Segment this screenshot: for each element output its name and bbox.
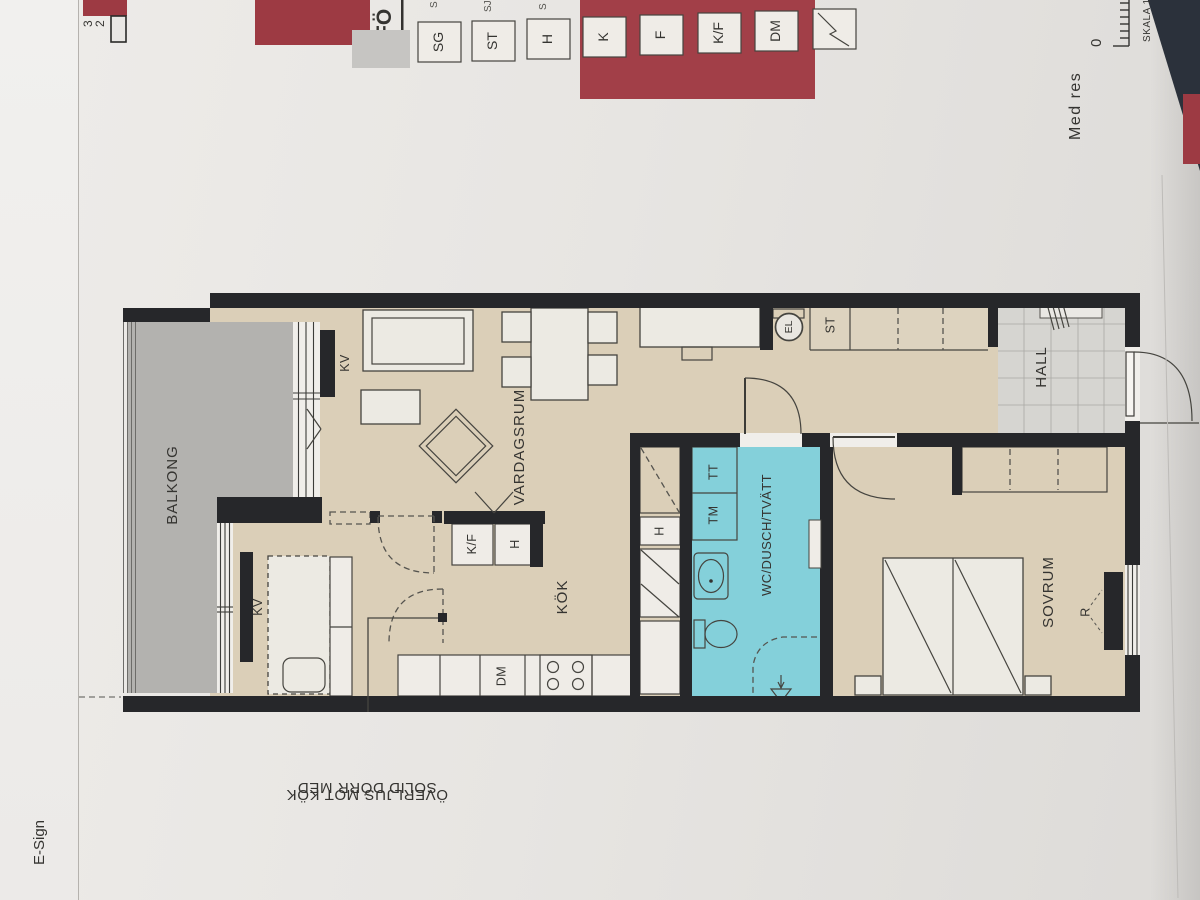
corner-digit: 2 (93, 20, 107, 27)
bathroom-door-opening (740, 433, 802, 447)
wall-el-stub (760, 308, 773, 350)
chair (502, 357, 531, 387)
nightstand (855, 676, 881, 695)
legend-text-fragment: SJ (483, 0, 494, 12)
fixture-label-r: R (1078, 607, 1092, 616)
legend-text-fragment: S (429, 1, 440, 8)
room-label-hall: HALL (1033, 346, 1050, 388)
sofa (363, 310, 473, 371)
wall-right (1125, 308, 1140, 347)
wall-corridor (630, 433, 745, 447)
balcony-floor-lower (127, 497, 217, 693)
wall-hall-left (988, 297, 998, 347)
legend-text-fragment: S (538, 3, 549, 10)
door-annotation: SOLID DÖRR MED ÖVERLJUS MOT KÖK (286, 779, 448, 804)
chair (588, 312, 617, 343)
scale-zero: 0 (1088, 39, 1105, 47)
room-label-bedroom: SOVRUM (1040, 556, 1057, 628)
room-label-bathroom: WC/DUSCH/TVÄTT (759, 474, 774, 596)
legend-gray-swatch (352, 30, 410, 68)
legend-label: F (652, 31, 668, 40)
wall-bathroom-right (820, 437, 833, 696)
chair (588, 355, 617, 385)
bathroom-niche (809, 520, 821, 568)
annotation-line2: ÖVERLJUS MOT KÖK (286, 786, 448, 804)
floorplan-drawing: 3 2 FÖ SG ST H K F K/F DM S SJ (0, 0, 1200, 900)
annotation-dot (438, 613, 447, 622)
wall-corner-block (217, 497, 322, 523)
kitchen-counter (398, 655, 632, 696)
wall-corridor (800, 433, 833, 447)
legend-label: SG (430, 32, 446, 52)
balcony-floor-upper (127, 322, 293, 497)
fixture-label-dm: DM (494, 666, 508, 686)
page-corner-marks: 3 2 (81, 16, 126, 42)
bedroom-door-opening (830, 433, 897, 447)
radiator-kv (320, 330, 335, 397)
lower-cabinet (640, 621, 680, 694)
scale-and-disclaimer: Med res 0 SKALA 1 (1067, 0, 1153, 140)
wall-corridor (895, 433, 1125, 447)
paper-edge-line (1162, 175, 1178, 898)
corner-box (111, 16, 126, 42)
wall-bottom (123, 696, 1140, 712)
wall-services-right (680, 437, 692, 696)
optional-furniture-dashed (268, 556, 330, 694)
fixture-label-el: EL (783, 320, 795, 333)
fixture-label-h: H (508, 539, 522, 548)
wall-kitchen-unit-side (530, 523, 543, 567)
fixture-label-st: ST (823, 317, 837, 334)
fixture-label-tm: TM (706, 506, 720, 525)
wall-wardrobe-stub (952, 433, 962, 495)
disclaimer-text: Med res (1067, 72, 1084, 140)
room-label-kitchen: KÖK (553, 580, 571, 615)
sideboard (640, 302, 760, 347)
wall-services-left (630, 437, 640, 696)
legend-label: H (539, 34, 555, 44)
fixture-label-kf: K/F (465, 534, 479, 555)
dining-table (531, 308, 588, 400)
radiator-bedroom (1104, 572, 1123, 650)
bathroom-floor (692, 447, 820, 696)
legend-label: DM (767, 20, 783, 42)
chair (502, 312, 531, 342)
shaft-hatched (640, 549, 680, 617)
photo-of-floorplan-document: 3 2 FÖ SG ST H K F K/F DM S SJ (0, 0, 1200, 900)
fixture-label-h: H (652, 526, 666, 535)
fixture-label-kv: KV (251, 598, 265, 616)
wall-right (1125, 421, 1140, 565)
room-label-balcony: BALKONG (164, 445, 181, 525)
scale-label: SKALA 1 (1142, 0, 1153, 42)
hall-floor-tiles (998, 308, 1125, 433)
room-label-living: VARDAGSRUM (511, 389, 528, 505)
red-block-corner (1183, 94, 1200, 164)
wall-top (210, 293, 1140, 308)
legend-label: K (595, 32, 611, 42)
entrance-door-leaf (1126, 352, 1134, 416)
fixture-label-tt: TT (706, 464, 720, 480)
esign-app-label: E-Sign (31, 820, 48, 865)
nightstand (1025, 676, 1051, 695)
entrance-door-arc (1134, 352, 1192, 421)
legend-label: ST (484, 32, 500, 50)
fixture-label-kv: KV (338, 354, 352, 372)
legend-label: K/F (710, 22, 726, 44)
coffee-table (361, 390, 420, 424)
red-block-small (83, 0, 127, 16)
scale-ruler (1113, 0, 1129, 46)
wall-balcony-stub (123, 308, 210, 322)
